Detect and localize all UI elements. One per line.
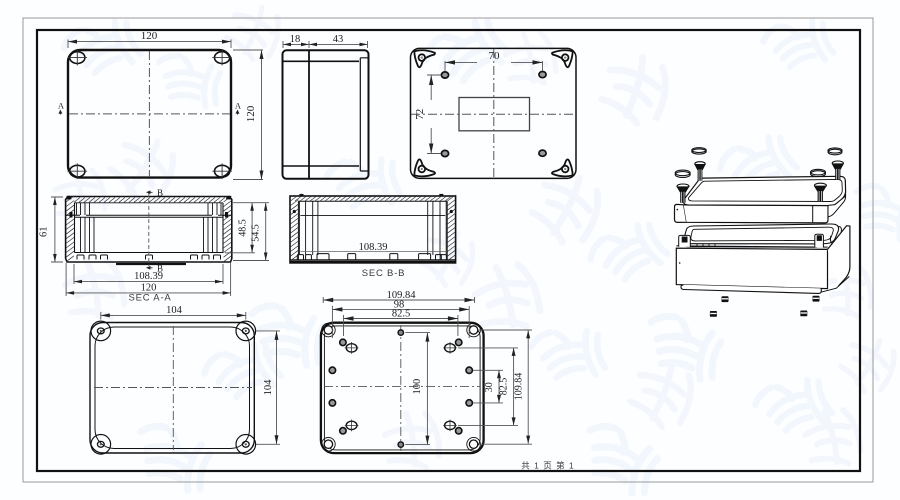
svg-text:共 1 页 第 1: 共 1 页 第 1	[521, 461, 574, 471]
svg-text:108.39: 108.39	[134, 271, 163, 282]
svg-text:B: B	[157, 188, 163, 198]
svg-text:82.5: 82.5	[499, 378, 510, 396]
svg-text:18: 18	[290, 34, 301, 45]
svg-text:82.5: 82.5	[392, 308, 410, 319]
svg-text:70: 70	[489, 50, 501, 62]
svg-text:A: A	[235, 101, 242, 111]
svg-text:43: 43	[333, 34, 344, 45]
svg-text:54.5: 54.5	[251, 224, 262, 242]
svg-text:120: 120	[245, 105, 257, 122]
svg-text:61: 61	[39, 226, 50, 237]
svg-text:104: 104	[263, 379, 274, 396]
svg-text:SEC B-B: SEC B-B	[362, 268, 406, 279]
svg-text:109.84: 109.84	[514, 373, 525, 401]
svg-text:A: A	[58, 101, 65, 111]
svg-text:30: 30	[484, 382, 495, 392]
svg-text:100: 100	[412, 379, 423, 395]
svg-text:SEC A-A: SEC A-A	[128, 293, 171, 304]
svg-text:72: 72	[414, 109, 426, 120]
svg-text:108.39: 108.39	[359, 242, 388, 253]
svg-text:104: 104	[166, 305, 183, 316]
svg-text:48.5: 48.5	[238, 219, 249, 237]
svg-text:120: 120	[141, 30, 158, 42]
